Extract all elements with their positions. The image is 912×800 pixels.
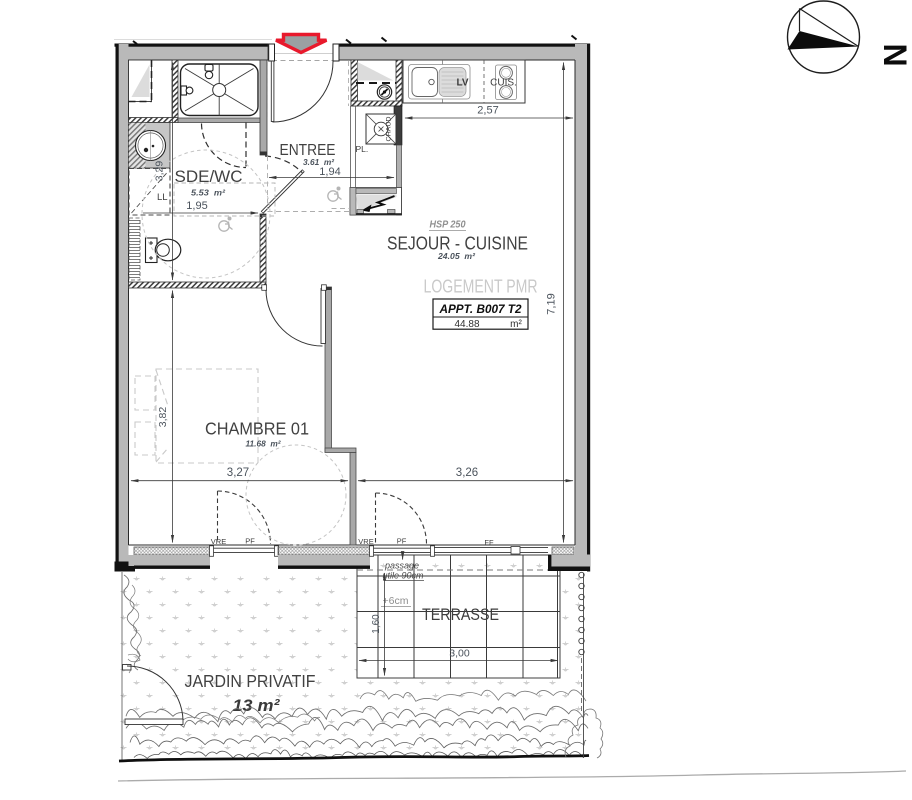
svg-text:PF: PF: [245, 537, 255, 546]
svg-text:passage: passage: [384, 561, 419, 571]
svg-text:utile 90cm: utile 90cm: [382, 571, 424, 581]
svg-text:+6cm: +6cm: [383, 595, 409, 607]
svg-text:CHAMBRE 01: CHAMBRE 01: [205, 419, 309, 439]
svg-text:CHAUD: CHAUD: [386, 116, 393, 141]
svg-text:JARDIN PRIVATIF: JARDIN PRIVATIF: [185, 671, 316, 691]
svg-text:44.88: 44.88: [454, 319, 479, 330]
svg-text:1,60: 1,60: [371, 614, 382, 634]
svg-text:7,19: 7,19: [546, 293, 558, 314]
svg-text:3,27: 3,27: [227, 467, 249, 479]
svg-text:PL.: PL.: [356, 144, 369, 154]
svg-text:11.68 m²: 11.68 m²: [246, 439, 282, 449]
svg-text:CUIS.: CUIS.: [490, 78, 517, 89]
svg-text:m²: m²: [510, 319, 522, 330]
svg-text:1,94: 1,94: [319, 166, 340, 178]
svg-text:3.61 m²: 3.61 m²: [303, 157, 335, 167]
svg-text:5.53 m²: 5.53 m²: [191, 188, 226, 198]
svg-text:FF: FF: [484, 538, 494, 547]
svg-text:3,82: 3,82: [157, 407, 169, 428]
svg-text:3,26: 3,26: [456, 467, 478, 479]
svg-text:APPT. B007 T2: APPT. B007 T2: [438, 304, 522, 316]
svg-text:VRE: VRE: [358, 537, 373, 546]
svg-text:SDE/WC: SDE/WC: [175, 167, 243, 186]
svg-text:VRE: VRE: [211, 537, 226, 546]
svg-text:N: N: [877, 43, 912, 66]
svg-text:24.05 m²: 24.05 m²: [437, 251, 476, 261]
svg-text:1,95: 1,95: [186, 200, 207, 212]
svg-text:PF: PF: [397, 537, 407, 546]
svg-text:3,00: 3,00: [449, 648, 470, 660]
svg-text:LL: LL: [157, 192, 168, 203]
svg-text:HSP 250: HSP 250: [430, 220, 466, 231]
svg-text:TERRASSE: TERRASSE: [422, 605, 499, 624]
svg-text:13 m²: 13 m²: [233, 697, 281, 715]
svg-text:3,29: 3,29: [154, 161, 166, 182]
svg-text:2,57: 2,57: [477, 105, 498, 117]
svg-text:LV: LV: [456, 78, 468, 89]
svg-text:LOGEMENT PMR: LOGEMENT PMR: [424, 277, 538, 297]
